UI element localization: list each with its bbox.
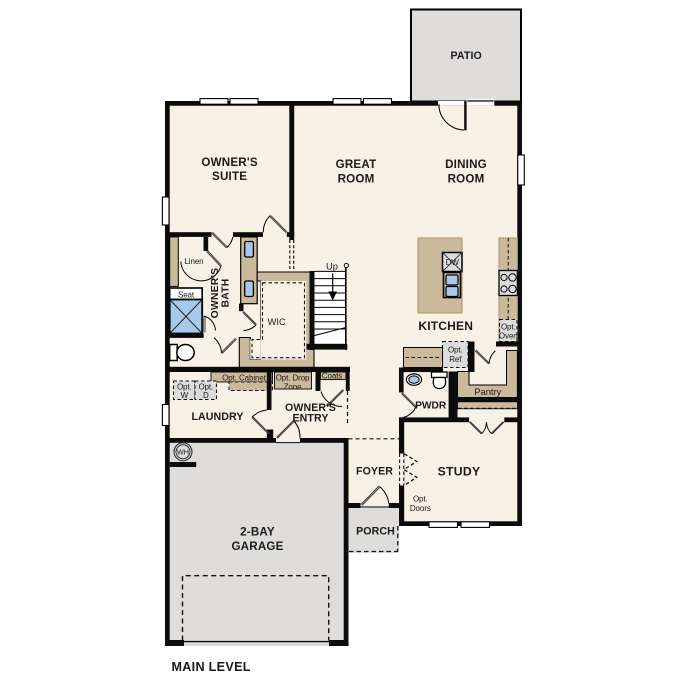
svg-text:Seat: Seat	[178, 291, 195, 300]
svg-text:ROOM: ROOM	[338, 173, 375, 186]
svg-text:Opt.: Opt.	[198, 383, 213, 392]
svg-text:MAIN LEVEL: MAIN LEVEL	[172, 660, 251, 674]
svg-text:2-BAY: 2-BAY	[240, 526, 275, 539]
svg-text:KITCHEN: KITCHEN	[418, 319, 473, 333]
svg-text:FOYER: FOYER	[356, 465, 393, 477]
svg-text:WH: WH	[177, 448, 189, 457]
svg-text:Opt.: Opt.	[413, 495, 428, 504]
svg-text:DINING: DINING	[445, 158, 487, 171]
svg-text:Oven: Oven	[499, 332, 518, 341]
svg-text:DW: DW	[446, 258, 460, 267]
svg-text:GREAT: GREAT	[336, 158, 377, 171]
svg-text:Doors: Doors	[410, 504, 431, 513]
svg-text:BATH: BATH	[221, 279, 232, 308]
svg-text:Zone: Zone	[284, 383, 302, 392]
svg-text:LAUNDRY: LAUNDRY	[191, 411, 243, 423]
svg-text:Linen: Linen	[184, 257, 203, 266]
svg-text:OWNER'S: OWNER'S	[201, 156, 257, 169]
svg-text:Opt.: Opt.	[177, 383, 192, 392]
svg-text:WIC: WIC	[268, 317, 286, 327]
svg-text:GARAGE: GARAGE	[231, 540, 283, 553]
svg-text:ENTRY: ENTRY	[292, 413, 328, 425]
svg-text:Up: Up	[326, 261, 338, 271]
svg-text:OWNER'S: OWNER'S	[210, 268, 221, 319]
svg-text:W: W	[181, 391, 189, 400]
svg-text:PORCH: PORCH	[356, 526, 395, 538]
svg-text:ROOM: ROOM	[448, 173, 485, 186]
svg-text:Opt.: Opt.	[501, 322, 516, 331]
svg-text:Coats: Coats	[322, 372, 342, 381]
svg-text:SUITE: SUITE	[212, 170, 247, 183]
svg-text:Opt.: Opt.	[448, 346, 463, 355]
svg-text:Pantry: Pantry	[474, 387, 501, 397]
svg-text:D: D	[203, 391, 209, 400]
svg-text:Opt. Cabinet: Opt. Cabinet	[222, 373, 267, 382]
svg-text:PWDR: PWDR	[415, 401, 447, 412]
svg-text:PATIO: PATIO	[451, 50, 482, 62]
svg-text:Opt. Drop: Opt. Drop	[276, 374, 310, 383]
svg-text:STUDY: STUDY	[438, 465, 481, 479]
svg-text:Ref: Ref	[449, 355, 462, 364]
